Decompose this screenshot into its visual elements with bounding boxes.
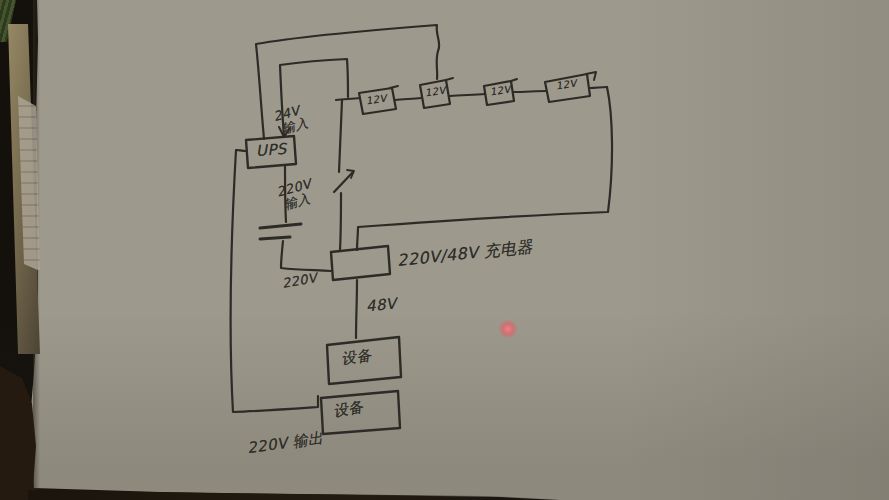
plug-symbol-bottom-bar (260, 237, 290, 239)
wire-battery4-right (590, 87, 607, 88)
wire-plug-to-converter (281, 241, 331, 271)
wire-right-return-loop (357, 87, 612, 250)
switch-blade-icon (334, 172, 353, 192)
laser-pointer-dot (498, 320, 518, 338)
wire-battery1-battery2 (395, 98, 421, 100)
wire-switch-top (339, 100, 342, 172)
ups-label: UPS (255, 142, 287, 160)
output-48v-label: 48V (365, 296, 397, 315)
wire-switch-bottom (340, 193, 341, 250)
battery-1-flap (390, 86, 398, 88)
wire-battery3-battery4 (514, 91, 546, 92)
wire-48v-output (356, 280, 357, 338)
wire-battery2-battery3 (450, 94, 485, 96)
photo-of-circuit-sketch: UPS 24V 输入 220V 输入 220V 220V/48V 充电器 48V… (0, 0, 889, 500)
battery-2-flap (446, 78, 453, 80)
plug-symbol-top-bar (260, 224, 301, 228)
battery-3-flap (511, 79, 517, 81)
converter-box (331, 246, 390, 280)
wire-junction-to-battery1 (336, 98, 360, 100)
